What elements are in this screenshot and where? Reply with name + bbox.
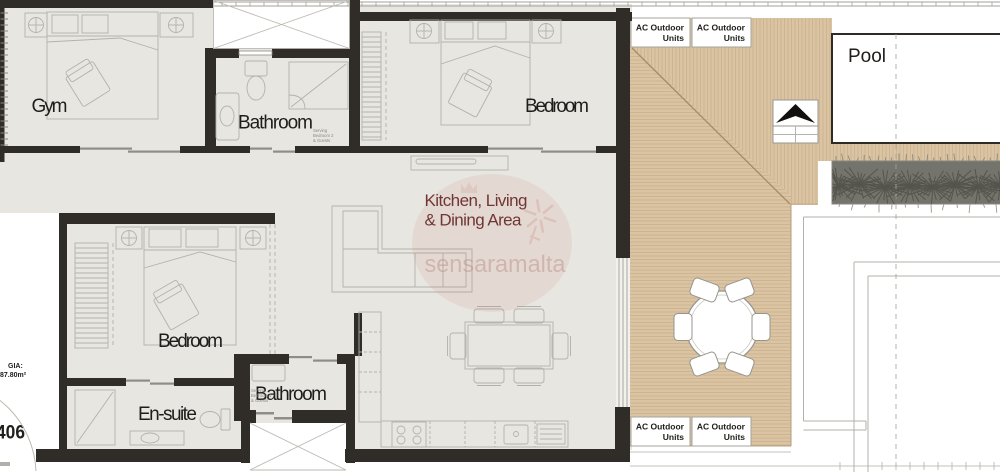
svg-text:AC Outdoor: AC Outdoor (636, 23, 685, 33)
svg-text:Kitchen, Living: Kitchen, Living (425, 191, 528, 210)
svg-text:AC Outdoor: AC Outdoor (636, 422, 685, 432)
svg-text:Units: Units (663, 33, 685, 43)
svg-text:AC Outdoor: AC Outdoor (697, 422, 746, 432)
svg-text:& Dining Area: & Dining Area (425, 211, 523, 230)
svg-text:Bathroom: Bathroom (238, 113, 313, 134)
svg-text:& Guests: & Guests (251, 398, 268, 403)
svg-text:406: 406 (0, 423, 25, 444)
svg-text:Bedroom: Bedroom (158, 331, 223, 352)
svg-text:AC Outdoor: AC Outdoor (697, 23, 746, 33)
svg-text:87.80m²: 87.80m² (0, 372, 27, 379)
svg-text:GIA:: GIA: (8, 363, 23, 370)
svg-text:sensaramalta: sensaramalta (425, 251, 567, 278)
svg-text:Units: Units (724, 432, 746, 442)
svg-text:Units: Units (663, 432, 685, 442)
svg-text:Gym: Gym (32, 96, 68, 117)
svg-text:Bedroom: Bedroom (525, 96, 589, 117)
svg-text:Units: Units (724, 33, 746, 43)
svg-text:Pool: Pool (848, 46, 886, 67)
svg-text:En-suite: En-suite (138, 404, 197, 425)
svg-text:& Guests: & Guests (313, 138, 330, 143)
